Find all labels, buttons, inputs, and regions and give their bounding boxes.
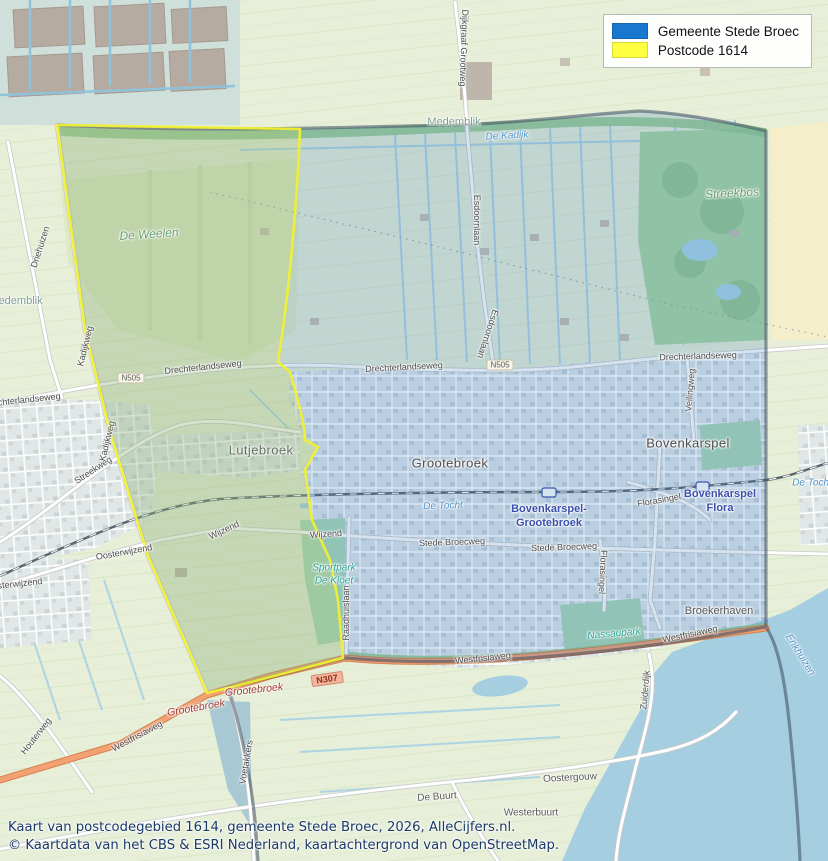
urban-right-edge bbox=[798, 425, 828, 545]
map-canvas bbox=[0, 0, 828, 861]
greenhouses bbox=[0, 0, 240, 125]
legend-item-gemeente: Gemeente Stede Broec bbox=[612, 23, 799, 39]
legend-swatch-gemeente bbox=[612, 23, 648, 39]
legend-label-gemeente: Gemeente Stede Broec bbox=[658, 24, 799, 39]
map-viewport: GrootebroekBovenkarspelLutjebroekBroeker… bbox=[0, 0, 828, 861]
caption-line-2: © Kaartdata van het CBS & ESRI Nederland… bbox=[8, 837, 559, 855]
legend: Gemeente Stede Broec Postcode 1614 bbox=[603, 14, 812, 68]
caption-line-1: Kaart van postcodegebied 1614, gemeente … bbox=[8, 819, 559, 837]
map-caption: Kaart van postcodegebied 1614, gemeente … bbox=[8, 819, 559, 855]
legend-label-postcode: Postcode 1614 bbox=[658, 43, 748, 58]
legend-swatch-postcode bbox=[612, 42, 648, 58]
field-tan bbox=[770, 122, 828, 340]
legend-item-postcode: Postcode 1614 bbox=[612, 42, 799, 58]
